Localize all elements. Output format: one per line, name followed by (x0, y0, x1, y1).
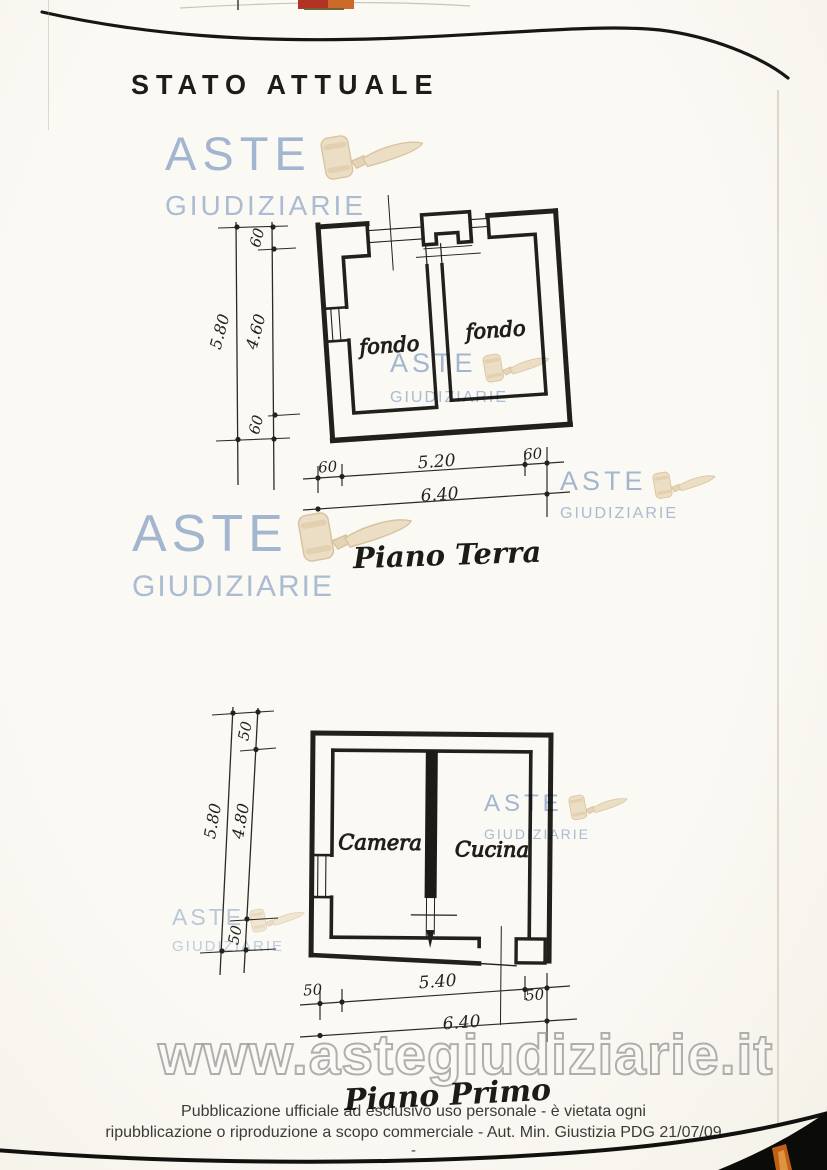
watermark-text: ASTE (390, 350, 477, 377)
door-centerline (500, 927, 501, 1025)
dim-inner-width: 5.20 (417, 451, 456, 474)
paper-top-curl-line (42, 12, 788, 78)
right-outer-wall (549, 735, 551, 961)
watermark-aste-giudiziarie: ASTE GIUDIZIARIE (560, 468, 717, 522)
watermark-aste-giudiziarie: ASTE GIUDIZIARIE (165, 130, 426, 220)
piano-terra-label: Piano Terra (352, 535, 541, 576)
bottom-page-edge-curve (0, 1100, 827, 1170)
watermark-aste-giudiziarie: ASTE GIUDIZIARIE (390, 350, 551, 406)
watermark-text: GIUDIZIARIE (165, 192, 426, 220)
door-opening-lines (367, 227, 423, 243)
left-window-panes (331, 308, 341, 341)
dim-wall-right: 60 (522, 444, 543, 463)
dim-inner-height: 4.60 (242, 312, 270, 352)
watermark-text: ASTE (165, 130, 312, 177)
dim-total-width: 6.40 (420, 484, 459, 507)
window-top-lines (470, 218, 489, 227)
right-inner-wall (529, 752, 531, 937)
piano-terra-left-dims (216, 222, 300, 490)
dim-wall-bottom: 60 (245, 413, 267, 437)
watermark-aste-giudiziarie: ASTE GIUDIZIARIE (484, 792, 629, 841)
red-stamp-fragment (298, 0, 328, 9)
gavel-icon (248, 907, 306, 939)
stamp-shadow (304, 8, 344, 10)
left-window-panes (318, 855, 326, 897)
right-paper-edge (777, 90, 779, 1125)
dim-inner-width: 5.40 (418, 971, 457, 994)
dim-wall-left: 50 (302, 980, 323, 999)
dim-wall-top: 50 (234, 719, 256, 742)
orange-stamp-fragment (328, 0, 354, 9)
bottom-door-sill (479, 963, 516, 965)
room-label-right: fondo (463, 316, 527, 344)
bottom-right-pier (516, 939, 545, 963)
bottom-outer-wall (311, 955, 479, 963)
paper-bottom-curl-line (0, 1112, 827, 1162)
partition-wall-solid (425, 751, 438, 898)
dim-total-height: 5.80 (200, 802, 225, 840)
dim-wall-right: 50 (524, 985, 545, 1004)
gavel-icon (318, 134, 426, 190)
left-inner-wall (341, 224, 373, 308)
dim-inner-height: 4.80 (228, 802, 253, 841)
watermark-text: ASTE (132, 508, 288, 560)
watermark-text: ASTE (560, 468, 647, 495)
watermark-text: GIUDIZIARIE (172, 939, 306, 954)
left-outer-wall (311, 733, 313, 955)
dim-wall-top: 60 (246, 226, 268, 250)
gavel-icon (481, 352, 551, 390)
watermark-aste-giudiziarie: ASTE GIUDIZIARIE (172, 906, 306, 954)
dim-wall-left: 60 (317, 457, 338, 476)
partition-door-jambs (426, 244, 442, 266)
dim-total-height: 5.80 (206, 312, 234, 351)
page-title: STATO ATTUALE (131, 70, 439, 102)
gavel-icon (567, 793, 629, 827)
watermark-text: GIUDIZIARIE (390, 390, 551, 406)
watermark-text: GIUDIZIARIE (560, 506, 717, 522)
watermark-text: GIUDIZIARIE (484, 827, 629, 841)
scanned-floor-plan-page: STATO ATTUALE fondo fondo (0, 0, 827, 1170)
watermark-text: GIUDIZIARIE (132, 572, 416, 602)
top-center-pier (422, 212, 472, 245)
left-window-jambs (312, 855, 332, 897)
gavel-icon (651, 470, 717, 506)
watermark-text: ASTE (484, 792, 563, 816)
room-label-left: Camera (338, 830, 422, 855)
left-paper-edge (48, 0, 49, 130)
bottom-inner-wall (331, 937, 479, 946)
left-inner-wall (332, 750, 333, 855)
watermark-text: ASTE (172, 906, 244, 929)
